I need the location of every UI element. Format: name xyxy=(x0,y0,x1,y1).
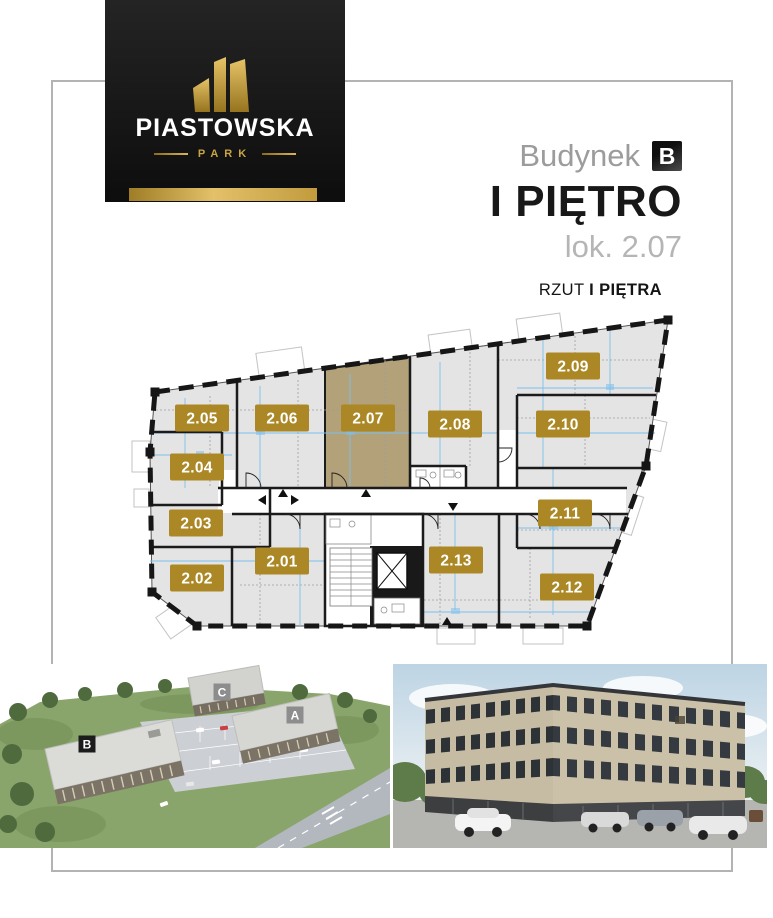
brand-name: PIASTOWSKA xyxy=(105,114,345,143)
plan-caption-regular: RZUT xyxy=(539,281,584,299)
plan-header: Budynek B I PIĘTRO lok. 2.07 RZUT I PIĘT… xyxy=(490,138,682,300)
svg-text:2.11: 2.11 xyxy=(550,506,581,523)
stair-core xyxy=(325,514,423,626)
unit-badge-2.06: 2.06 xyxy=(255,405,309,432)
floor-plan: 2.012.022.032.042.052.062.072.082.092.10… xyxy=(120,300,690,660)
svg-text:2.09: 2.09 xyxy=(557,359,588,376)
svg-text:A: A xyxy=(291,709,300,723)
unit-badge-2.12: 2.12 xyxy=(540,574,594,601)
floor-title: I PIĘTRO xyxy=(490,177,682,227)
facade-logo xyxy=(675,716,685,724)
brand-towers-icon xyxy=(185,52,265,112)
svg-text:2.10: 2.10 xyxy=(547,417,578,434)
svg-text:2.02: 2.02 xyxy=(181,571,212,588)
unit-badge-2.10: 2.10 xyxy=(536,411,590,438)
plan-caption: RZUT I PIĘTRA xyxy=(490,281,682,300)
building-label: Budynek xyxy=(519,138,640,174)
brand-subtitle-text: PARK xyxy=(198,148,252,160)
svg-text:2.13: 2.13 xyxy=(440,553,471,570)
svg-text:C: C xyxy=(218,686,227,700)
building-letter-badge: B xyxy=(652,141,682,171)
svg-text:2.04: 2.04 xyxy=(181,460,212,477)
unit-badge-2.05: 2.05 xyxy=(175,405,229,432)
gold-bar xyxy=(129,188,317,201)
unit-badge-2.11: 2.11 xyxy=(538,500,592,527)
svg-text:2.03: 2.03 xyxy=(180,516,211,533)
site-badge-A: A xyxy=(287,707,304,724)
building-line: Budynek B xyxy=(490,138,682,174)
site-badge-B: B xyxy=(79,736,96,753)
brand-subtitle: PARK xyxy=(105,148,345,160)
unit-badge-2.02: 2.02 xyxy=(170,565,224,592)
brochure-page: PIASTOWSKA PARK Budynek B I PIĘTRO lok. … xyxy=(0,0,773,918)
svg-text:2.12: 2.12 xyxy=(551,580,582,597)
svg-text:2.08: 2.08 xyxy=(439,417,470,434)
site-badge-C: C xyxy=(214,684,231,701)
unit-badge-2.03: 2.03 xyxy=(169,510,223,537)
svg-text:2.05: 2.05 xyxy=(186,411,217,428)
svg-text:B: B xyxy=(83,738,92,752)
unit-badge-2.07: 2.07 xyxy=(341,405,395,432)
svg-text:2.06: 2.06 xyxy=(266,411,297,428)
brand-logo: PIASTOWSKA PARK xyxy=(105,0,345,202)
unit-badge-2.01: 2.01 xyxy=(255,548,309,575)
window-bands xyxy=(425,695,745,788)
unit-badge-2.09: 2.09 xyxy=(546,353,600,380)
svg-text:2.01: 2.01 xyxy=(266,554,297,571)
building-render xyxy=(393,664,767,848)
plan-caption-bold: I PIĘTRA xyxy=(589,281,662,299)
unit-badge-2.13: 2.13 xyxy=(429,547,483,574)
unit-badge-2.04: 2.04 xyxy=(170,454,224,481)
gold-rule-right-icon xyxy=(262,153,296,155)
svg-text:2.07: 2.07 xyxy=(352,411,383,428)
site-aerial-render: BCA xyxy=(0,664,390,848)
gold-rule-left-icon xyxy=(154,153,188,155)
unit-label: lok. 2.07 xyxy=(490,229,682,265)
unit-badge-2.08: 2.08 xyxy=(428,411,482,438)
